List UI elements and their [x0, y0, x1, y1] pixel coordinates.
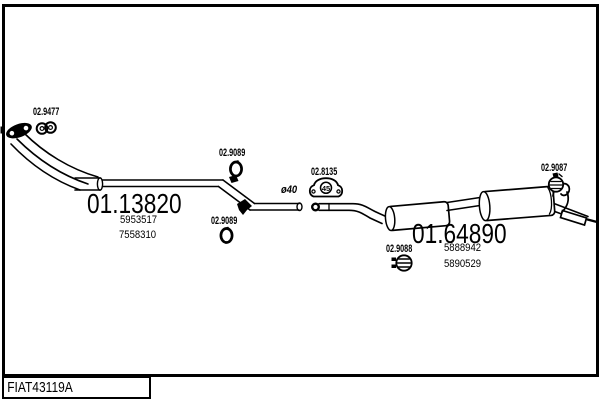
part-code-ring-lower: 02.9089: [211, 216, 237, 227]
part-code-gasket: 02.8135: [311, 167, 337, 178]
gasket-size-text: 45: [322, 184, 330, 193]
rear-muffler: [478, 186, 555, 221]
tail-pipe-end-line: [588, 220, 598, 223]
double-ring-clamp-icon: [37, 122, 56, 134]
part-code-ring-upper: 02.9089: [219, 148, 245, 159]
oem-number-rear-1: 5888942: [444, 243, 481, 254]
part-code-tail-clamp: 02.9087: [541, 163, 567, 174]
oem-number-front-1: 5953517: [120, 215, 157, 226]
drawing-number-box: FIAT43119A: [2, 376, 151, 399]
flange-bolt: [1, 127, 6, 134]
drawing-number: FIAT43119A: [4, 379, 73, 396]
rubber-ring-lower-icon: [221, 228, 232, 244]
intermediate-pipe: [329, 204, 387, 224]
front-downpipe: [11, 133, 98, 190]
part-code-front-clamp: 02.9477: [33, 107, 59, 118]
inter-muffler-pipe: [447, 198, 480, 211]
oem-number-front-2: 7558310: [119, 230, 156, 241]
band-clamp-tail-icon: [549, 173, 563, 192]
band-clamp-center-icon: [392, 255, 412, 270]
flange-gasket-icon: 45: [310, 178, 342, 196]
part-code-center-clamp: 02.9088: [386, 244, 412, 255]
pipe-diameter-note: ø40: [281, 185, 297, 196]
oem-number-rear-2: 5890529: [444, 259, 481, 270]
joint-bolt-flange: [312, 204, 329, 211]
rubber-ring-upper-icon: [230, 161, 241, 176]
tail-pipe-tip: [561, 211, 587, 226]
tail-pipe: [552, 204, 597, 226]
exhaust-system-diagram: 45: [0, 0, 600, 400]
